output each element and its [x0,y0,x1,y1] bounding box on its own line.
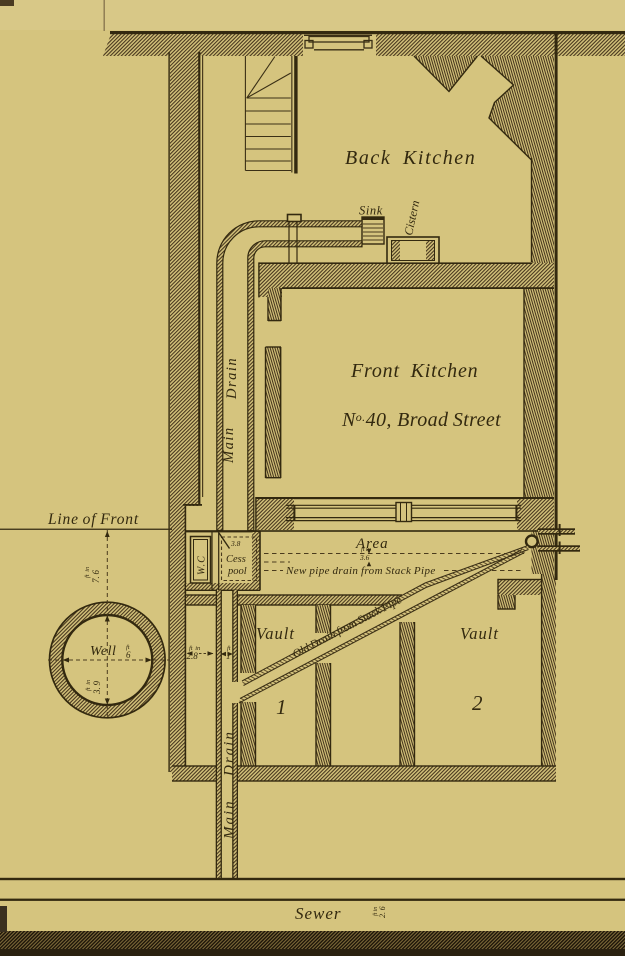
svg-text:Sewer: Sewer [295,904,342,923]
svg-text:3.8: 3.8 [230,539,241,548]
svg-text:Main: Main [222,799,238,840]
svg-text:Front Kitchen: Front Kitchen [350,360,478,382]
svg-text:6: 6 [126,650,131,660]
svg-text:ft in: ft in [372,907,379,916]
svg-text:7. 6: 7. 6 [91,569,101,583]
svg-text:Cess: Cess [226,554,246,565]
svg-text:3. 9: 3. 9 [92,680,102,695]
svg-text:Back Kitchen: Back Kitchen [345,147,476,169]
svg-text:Line of Front: Line of Front [47,511,139,528]
svg-text:2: 2 [472,691,483,715]
svg-text:W.C: W.C [197,555,208,575]
svg-text:Vault: Vault [460,624,499,643]
svg-text:3.6: 3.6 [359,553,370,562]
svg-text:2. 6: 2. 6 [378,906,387,918]
svg-text:ft in: ft in [85,680,92,691]
svg-text:Vault: Vault [256,624,295,643]
svg-text:Main: Main [221,426,237,464]
svg-text:Drain: Drain [222,730,238,777]
svg-text:Sink: Sink [359,204,383,218]
svg-text:Well: Well [90,644,116,659]
svg-text:1: 1 [276,695,287,719]
svg-text:No.40, Broad Street: No.40, Broad Street [341,409,501,431]
svg-text:pool: pool [227,566,247,577]
svg-text:New pipe drain from Stack Pipe: New pipe drain from Stack Pipe [285,565,436,577]
svg-text:ft in: ft in [84,567,91,578]
svg-text:Drain: Drain [224,357,240,400]
